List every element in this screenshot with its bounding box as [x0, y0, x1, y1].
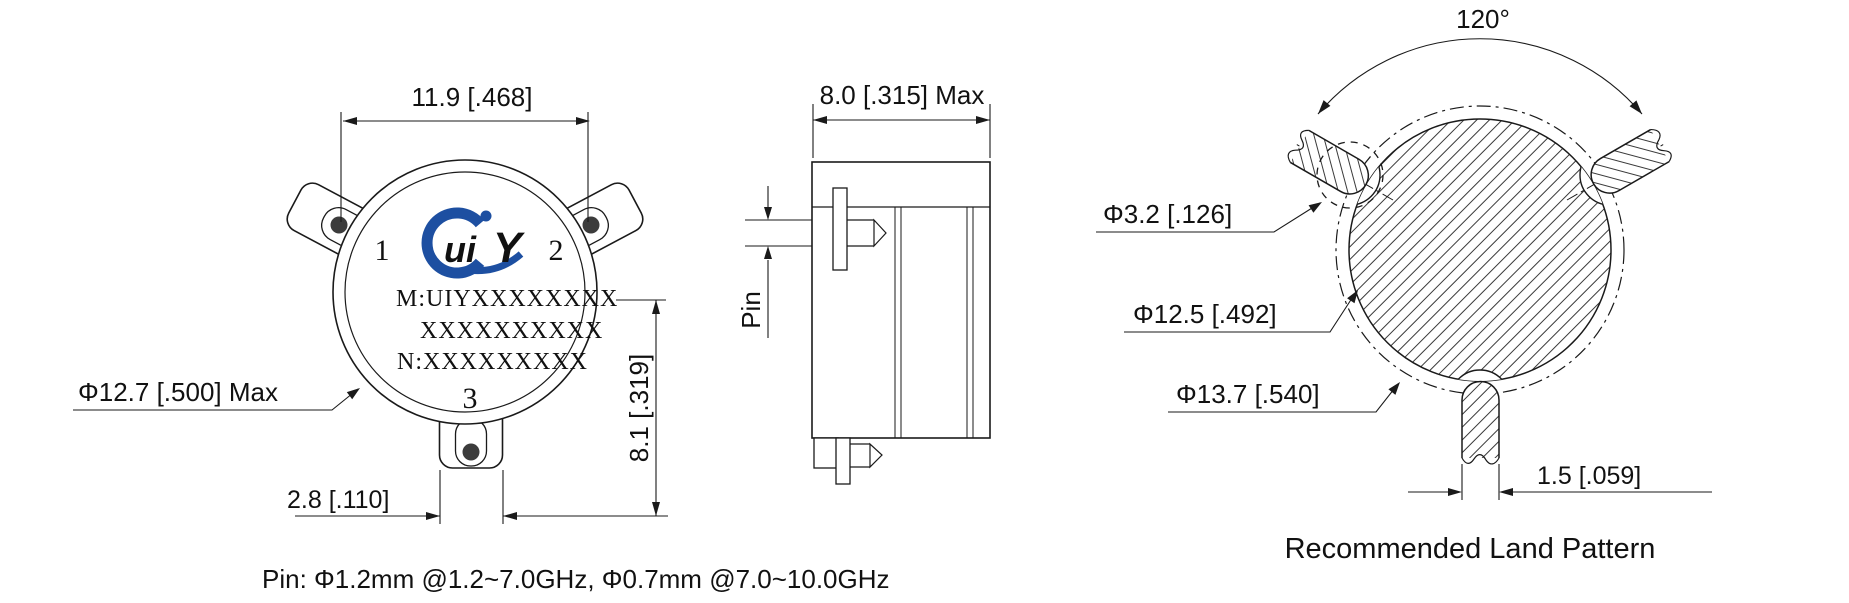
tab-hole-1	[331, 217, 348, 234]
pin-footnote: Pin: Φ1.2mm @1.2~7.0GHz, Φ0.7mm @7.0~10.…	[262, 564, 890, 594]
dim-8-0-text: 8.0 [.315] Max	[820, 80, 985, 110]
dim-3-2: Φ3.2 [.126]	[1096, 199, 1322, 232]
marking-line3: N:XXXXXXXXX	[397, 349, 588, 375]
tab-hole-3	[463, 444, 480, 461]
pin-label: Pin	[736, 291, 766, 329]
side-view: Pin 8.0 [.315] Max	[736, 80, 990, 484]
dim-12-7-text: Φ12.7 [.500] Max	[78, 377, 278, 407]
drawing-svg: ui Y M:UIYXXXXXXXX XXXXXXXXXX N:XXXXXXXX…	[0, 0, 1849, 603]
logo-text-ui: ui	[444, 229, 477, 270]
dim-1-5-text: 1.5 [.059]	[1537, 462, 1641, 490]
dim-120deg-text: 120°	[1456, 4, 1510, 34]
technical-drawing-page: ui Y M:UIYXXXXXXXX XXXXXXXXXX N:XXXXXXXX…	[0, 0, 1849, 603]
dim-3-2-text: Φ3.2 [.126]	[1103, 199, 1232, 229]
land-pattern-view: 120° Φ3.2 [.126] Φ12.5 [.492] Φ13.7 [.54…	[1096, 4, 1712, 565]
port-3-label: 3	[463, 382, 478, 415]
logo-text-y: Y	[493, 224, 525, 272]
dim-11-9-text: 11.9 [.468]	[412, 82, 533, 112]
dim-8-1-text: 8.1 [.319]	[624, 354, 654, 462]
top-view: ui Y M:UIYXXXXXXXX XXXXXXXXXX N:XXXXXXXX…	[73, 82, 668, 524]
port-2-label: 2	[549, 234, 564, 267]
pad-top-left	[1285, 127, 1375, 200]
dim-120deg: 120°	[1318, 4, 1642, 114]
tab-hole-2	[583, 217, 600, 234]
dim-12-5-text: Φ12.5 [.492]	[1133, 299, 1277, 329]
land-pattern-title: Recommended Land Pattern	[1285, 533, 1656, 565]
dim-2-8: 2.8 [.110]	[287, 470, 540, 524]
land-inner-circle	[1349, 119, 1611, 381]
pad-top-right	[1584, 127, 1674, 200]
dim-12-5: Φ12.5 [.492]	[1124, 290, 1358, 332]
dim-1-5: 1.5 [.059]	[1408, 462, 1712, 500]
dim-2-8-text: 2.8 [.110]	[287, 486, 389, 514]
pad-bottom	[1462, 382, 1499, 464]
marking-line2: XXXXXXXXXX	[420, 318, 603, 344]
dim-13-7-text: Φ13.7 [.540]	[1176, 379, 1320, 409]
marking-line1: M:UIYXXXXXXXX	[396, 286, 618, 312]
dim-12-7: Φ12.7 [.500] Max	[73, 377, 360, 410]
dim-13-7: Φ13.7 [.540]	[1168, 379, 1400, 412]
dim-pin: Pin	[736, 186, 812, 338]
dim-8-0: 8.0 [.315] Max	[813, 80, 990, 158]
port-1-label: 1	[375, 234, 390, 267]
side-bottom-pin	[814, 438, 882, 484]
